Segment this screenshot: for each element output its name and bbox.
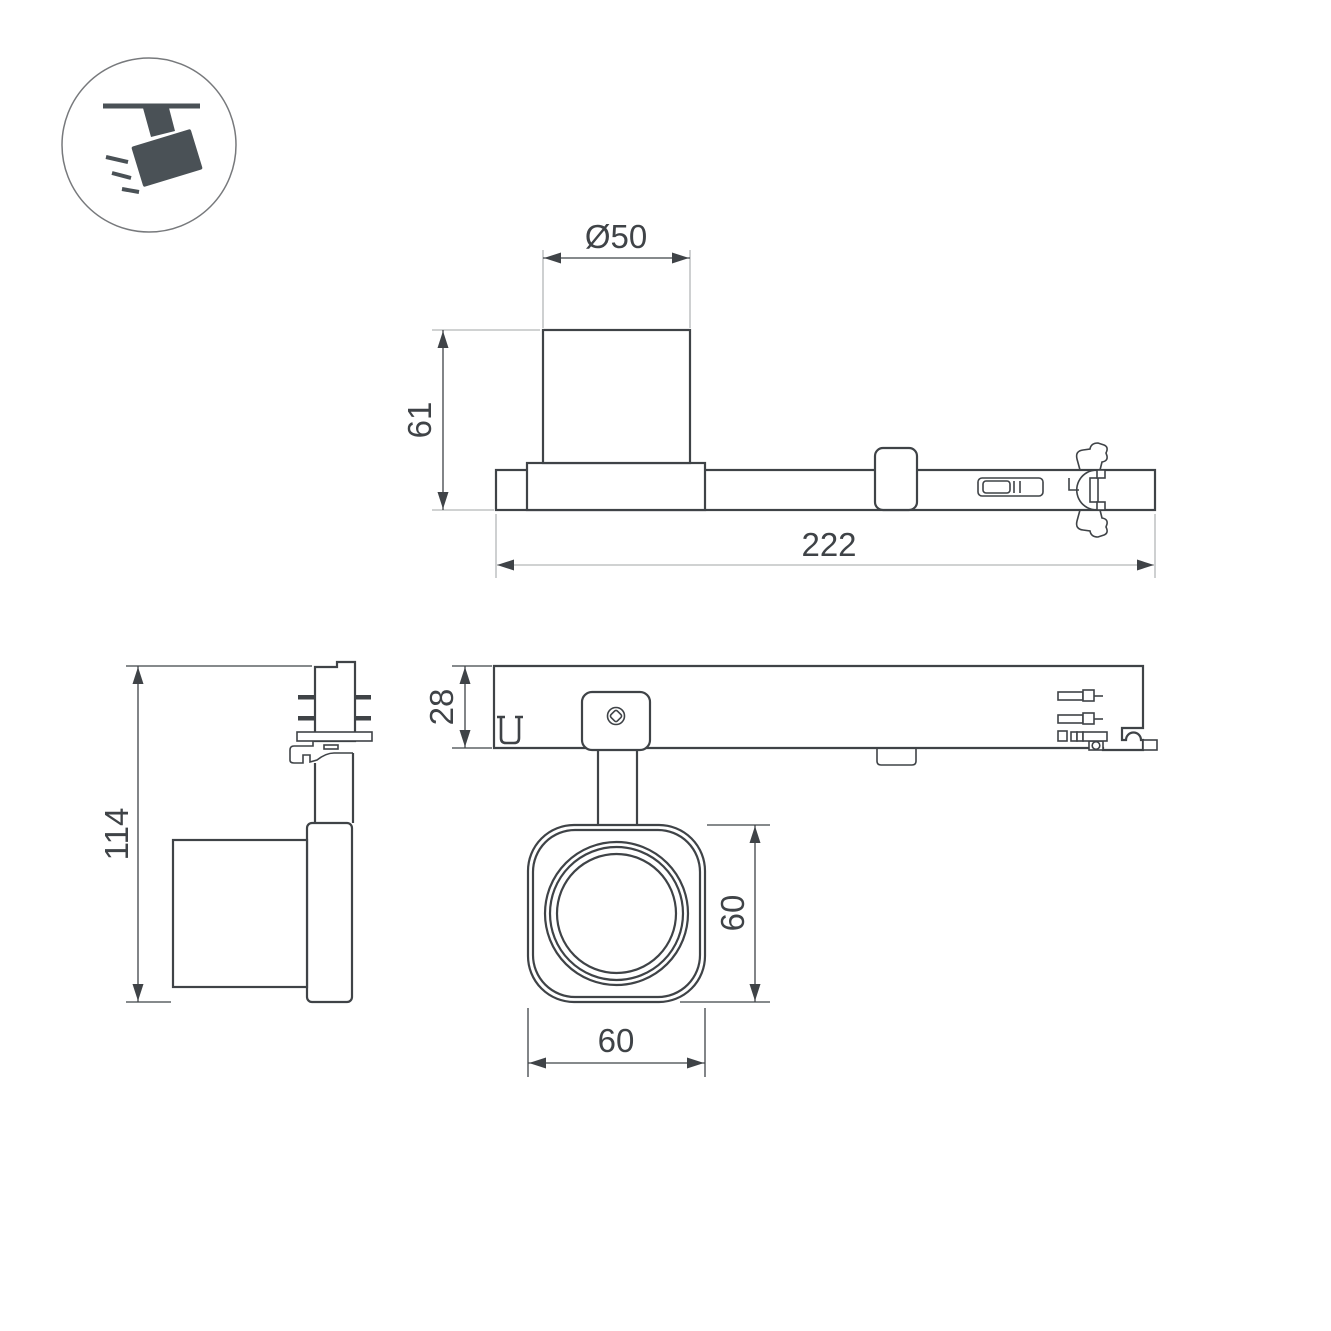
dim-label-length: 222 [801,526,856,563]
track-adapter [315,662,355,741]
dim-label-head-height: 60 [714,895,751,932]
dim-label-head-width: 60 [598,1022,635,1059]
connector-details [1058,731,1107,741]
lamp-stem-side [315,753,353,823]
slider-switch [978,478,1043,496]
drawing-page: Ø50 61 222 [0,0,1331,1331]
dim-label-track-height: 28 [423,689,460,726]
front-view: 28 60 60 [423,666,1157,1077]
under-bar-tab [877,748,916,765]
mount-base [527,463,705,510]
lamp-body-side [307,823,352,1002]
dimension-length-222: 222 [496,514,1155,578]
latch-lever [1089,741,1103,750]
dimension-track-height-28: 28 [423,666,492,748]
dimension-head-width-60: 60 [528,1008,705,1077]
lamp-stem [598,750,637,826]
adapter-flange [297,732,372,741]
side-view: 114 [98,662,372,1002]
lamp-head-front [528,825,705,1002]
latch-handle-tab [1143,740,1157,750]
lamp-cylinder [543,330,690,463]
technical-drawing: Ø50 61 222 [0,0,1331,1331]
top-view: Ø50 61 222 [401,218,1155,578]
dim-label-total-height: 114 [98,808,135,861]
lamp-head-side [173,840,307,987]
dim-label-diameter: Ø50 [585,218,647,255]
adapter-hook-detail [324,745,338,749]
dim-label-height: 61 [401,402,438,439]
adapter-hook [290,741,353,763]
dimension-diameter-50: Ø50 [543,218,690,328]
track-spotlight-icon [62,58,236,232]
driver-block [875,448,917,510]
